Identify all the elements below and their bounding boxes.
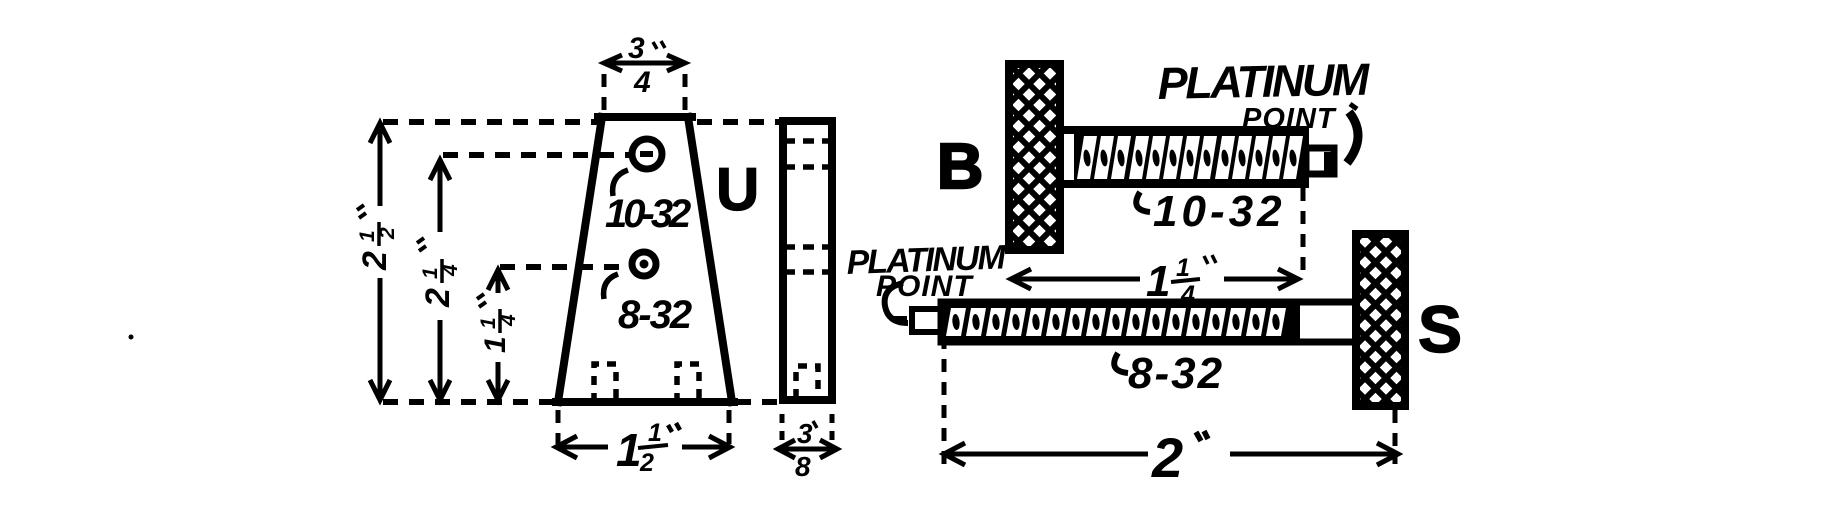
svg-text:3: 3 [797, 418, 813, 449]
svg-text:POINT: POINT [1242, 103, 1337, 135]
svg-text:1: 1 [479, 336, 512, 353]
svg-text:2: 2 [419, 288, 457, 308]
svg-text:8-32: 8-32 [1128, 349, 1224, 398]
svg-text:4: 4 [633, 66, 651, 99]
svg-text:2: 2 [356, 251, 394, 271]
svg-text:B: B [937, 130, 983, 202]
svg-text:S: S [1418, 292, 1462, 366]
svg-text:2: 2 [639, 449, 654, 477]
svg-text:8-32: 8-32 [618, 293, 692, 337]
svg-text:8: 8 [795, 451, 811, 482]
svg-text:10-32: 10-32 [605, 192, 691, 236]
svg-text:U: U [716, 156, 759, 223]
svg-text:PLATINUM: PLATINUM [1157, 54, 1371, 109]
svg-text:2: 2 [1151, 426, 1183, 489]
svg-text:3: 3 [628, 32, 645, 65]
svg-text:10-32: 10-32 [1153, 187, 1286, 236]
svg-text:1: 1 [648, 419, 662, 447]
svg-text:1: 1 [616, 424, 642, 476]
svg-text:1: 1 [1176, 254, 1190, 282]
